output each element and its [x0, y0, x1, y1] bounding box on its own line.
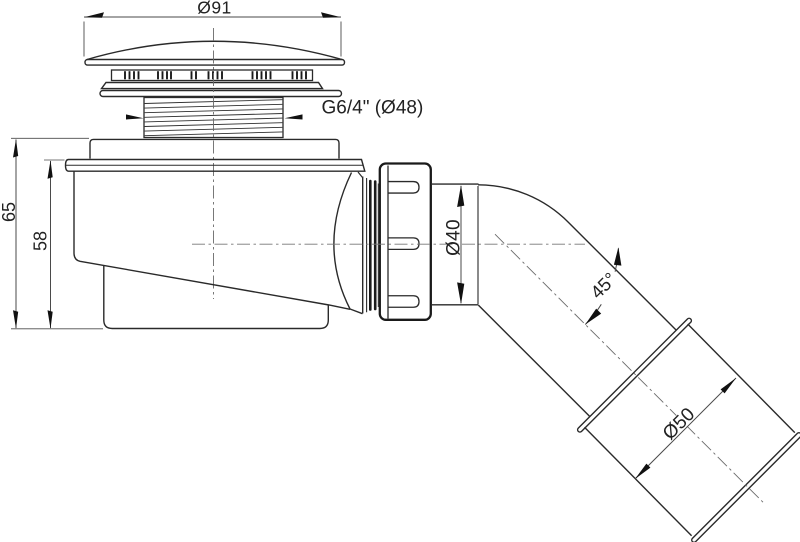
svg-text:58: 58 — [31, 231, 51, 251]
svg-text:65: 65 — [0, 202, 19, 222]
svg-text:Ø40: Ø40 — [444, 219, 465, 256]
svg-text:G6/4" (Ø48): G6/4" (Ø48) — [322, 97, 424, 118]
svg-text:Ø91: Ø91 — [197, 0, 232, 18]
